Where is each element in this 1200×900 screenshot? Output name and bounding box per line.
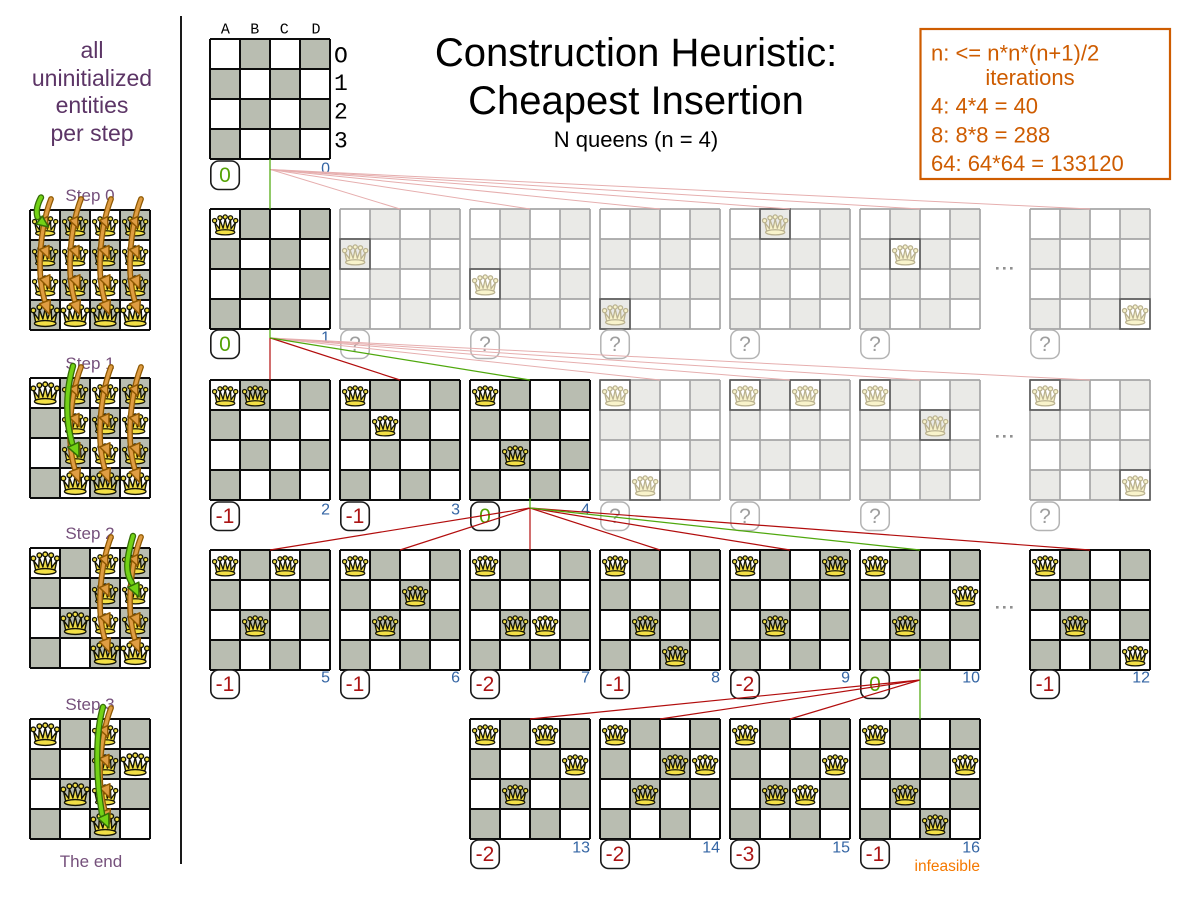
svg-text:9: 9 [841, 670, 850, 687]
svg-text:2: 2 [334, 100, 348, 126]
svg-text:Construction Heuristic:: Construction Heuristic: [435, 31, 837, 75]
svg-text:C: C [280, 22, 289, 39]
svg-text:?: ? [739, 333, 751, 356]
svg-text:64: 64*64 = 133120: 64: 64*64 = 133120 [931, 151, 1124, 176]
svg-text:-1: -1 [606, 673, 625, 696]
svg-text:12: 12 [1132, 670, 1150, 687]
svg-text:-2: -2 [736, 673, 755, 696]
svg-text:-1: -1 [216, 505, 235, 528]
svg-text:entities: entities [56, 92, 129, 118]
svg-text:?: ? [1039, 505, 1051, 528]
svg-text:The end: The end [60, 852, 122, 871]
svg-text:0: 0 [479, 505, 491, 528]
svg-text:uninitialized: uninitialized [32, 65, 152, 91]
svg-text:15: 15 [832, 840, 850, 857]
svg-text:Cheapest Insertion: Cheapest Insertion [468, 79, 804, 123]
svg-text:8: 8 [711, 670, 720, 687]
svg-text:1: 1 [334, 71, 348, 97]
svg-text:7: 7 [581, 670, 590, 687]
svg-text:D: D [311, 22, 320, 39]
svg-text:3: 3 [334, 129, 348, 155]
svg-text:16: 16 [962, 840, 980, 857]
svg-text:2: 2 [321, 502, 330, 519]
svg-text:0: 0 [219, 164, 231, 187]
svg-text:per step: per step [50, 120, 133, 146]
svg-text:O: O [334, 44, 348, 70]
svg-text:-3: -3 [736, 843, 755, 866]
svg-text:?: ? [869, 505, 881, 528]
svg-text:A: A [221, 22, 230, 39]
svg-text:-2: -2 [606, 843, 625, 866]
svg-text:14: 14 [702, 840, 720, 857]
svg-text:-1: -1 [866, 843, 885, 866]
svg-text:iterations: iterations [985, 65, 1074, 90]
svg-text:10: 10 [962, 670, 980, 687]
svg-text:4: 4*4 = 40: 4: 4*4 = 40 [931, 94, 1038, 119]
svg-text:6: 6 [451, 670, 460, 687]
svg-text:-1: -1 [1036, 673, 1055, 696]
svg-text:?: ? [869, 333, 881, 356]
svg-text:?: ? [1039, 333, 1051, 356]
svg-text:-1: -1 [216, 673, 235, 696]
svg-text:-1: -1 [346, 505, 365, 528]
svg-text:?: ? [609, 333, 621, 356]
svg-text:infeasible: infeasible [915, 858, 981, 875]
svg-text:-2: -2 [476, 673, 495, 696]
svg-text:N queens (n = 4): N queens (n = 4) [554, 127, 718, 152]
svg-text:5: 5 [321, 670, 330, 687]
svg-text:n: <= n*n*(n+1)/2: n: <= n*n*(n+1)/2 [931, 41, 1099, 66]
svg-text:13: 13 [572, 840, 590, 857]
svg-text:?: ? [479, 333, 491, 356]
svg-text:3: 3 [451, 502, 460, 519]
svg-text:-1: -1 [346, 673, 365, 696]
svg-text:B: B [250, 22, 259, 39]
svg-text:-2: -2 [476, 843, 495, 866]
svg-text:8: 8*8 = 288: 8: 8*8 = 288 [931, 123, 1050, 148]
svg-text:0: 0 [219, 333, 231, 356]
svg-text:all: all [80, 37, 103, 63]
